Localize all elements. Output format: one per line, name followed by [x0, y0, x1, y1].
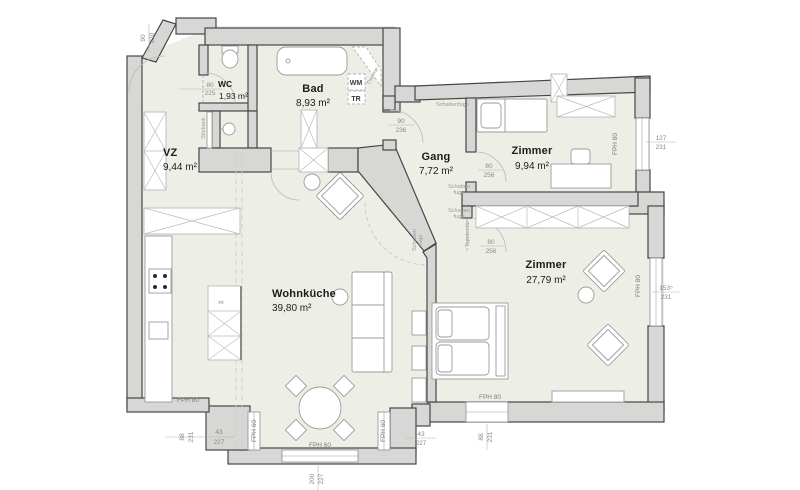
svg-text:39,80 m²: 39,80 m² — [272, 303, 312, 314]
fph60-bay-center: FPH 60 — [309, 442, 331, 449]
svg-text:Zimmer: Zimmer — [512, 145, 553, 157]
svg-text:Zimmer: Zimmer — [526, 259, 567, 271]
svg-text:9,94 m²: 9,94 m² — [515, 161, 550, 172]
shelf-icon — [412, 346, 426, 370]
floor-plan: ⋈ — [0, 0, 800, 490]
stool-icon — [304, 174, 320, 190]
svg-text:256: 256 — [484, 172, 495, 179]
wardrobe-long-icon — [476, 206, 629, 228]
svg-text:Wohnküche: Wohnküche — [272, 288, 336, 300]
svg-text:Bad: Bad — [302, 83, 323, 95]
svg-text:231: 231 — [487, 431, 494, 442]
sofa-icon — [352, 272, 392, 372]
svg-text:80: 80 — [487, 239, 495, 246]
tr-label: TR — [351, 96, 360, 103]
bed-single-icon — [477, 99, 547, 132]
svg-text:VZ: VZ — [163, 147, 178, 159]
bathtub-icon — [277, 47, 347, 75]
svg-text:fuge: fuge — [418, 235, 424, 246]
shelf-icon — [412, 311, 426, 335]
svg-text:Gang: Gang — [422, 151, 451, 163]
window-south — [466, 402, 508, 422]
svg-text:WC: WC — [218, 79, 232, 89]
svg-text:231: 231 — [661, 294, 672, 301]
svg-text:fuge: fuge — [454, 214, 465, 220]
svg-text:9,44 m²: 9,44 m² — [163, 162, 198, 173]
svg-text:153⁵: 153⁵ — [659, 285, 673, 292]
svg-text:220: 220 — [149, 32, 156, 43]
svg-text:231: 231 — [656, 144, 667, 151]
dining-table-icon — [299, 387, 341, 429]
wm-label: WM — [350, 80, 363, 87]
schattenfuge-top: Schattenfuge — [436, 102, 469, 108]
svg-text:225: 225 — [205, 90, 216, 97]
svg-text:8,93 m²: 8,93 m² — [296, 98, 331, 109]
svg-text:43: 43 — [215, 429, 223, 436]
svg-text:227: 227 — [318, 473, 325, 484]
svg-text:90: 90 — [397, 118, 405, 125]
svg-text:27,79 m²: 27,79 m² — [526, 275, 566, 286]
svg-text:7,72 m²: 7,72 m² — [419, 166, 454, 177]
svg-text:227: 227 — [416, 440, 427, 447]
svg-text:80: 80 — [485, 163, 493, 170]
window-right-top — [636, 118, 649, 170]
fph80-window-south: FPH 80 — [479, 394, 501, 401]
window-bay-center — [282, 450, 358, 462]
sitzbank-bench — [207, 112, 212, 148]
svg-text:43: 43 — [417, 431, 425, 438]
svg-text:88: 88 — [179, 433, 186, 441]
svg-text:231: 231 — [188, 431, 195, 442]
fph80-window-bottom-right: FPH 80 — [635, 275, 642, 297]
svg-text:80: 80 — [206, 82, 214, 89]
svg-text:1,93 m²: 1,93 m² — [219, 91, 248, 101]
svg-text:256: 256 — [486, 248, 497, 255]
svg-text:200: 200 — [309, 473, 316, 484]
svg-text:227: 227 — [214, 439, 225, 446]
svg-text:88: 88 — [478, 433, 485, 441]
fph80-window-southwest: FPH 80 — [177, 397, 199, 404]
sideboard-icon — [552, 391, 624, 402]
kitchen-marker: ⋈ — [218, 300, 224, 306]
side-table-icon — [578, 287, 594, 303]
double-bed-icon — [432, 303, 508, 379]
sitzbank-label: Sitzbank — [201, 117, 207, 139]
kitchen-counter — [145, 236, 172, 402]
tapetentuer-label: Tapetentür — [465, 221, 471, 248]
vz-wardrobe-wide — [144, 208, 240, 234]
kitchen-island: ⋈ — [208, 286, 241, 360]
fph60-bay-left: FPH 60 — [251, 420, 258, 442]
desk-chair-icon — [571, 149, 590, 164]
toilet-icon — [222, 46, 238, 68]
shelf-icon — [412, 378, 426, 402]
fph80-window-top-right: FPH 80 — [612, 133, 619, 155]
svg-text:236: 236 — [396, 127, 407, 134]
svg-text:fuge: fuge — [454, 190, 465, 196]
wardrobe-icon — [557, 96, 615, 117]
svg-text:90: 90 — [140, 34, 147, 42]
svg-text:127: 127 — [656, 135, 667, 142]
fph60-bay-right: FPH 60 — [380, 420, 387, 442]
desk-icon — [551, 164, 611, 188]
